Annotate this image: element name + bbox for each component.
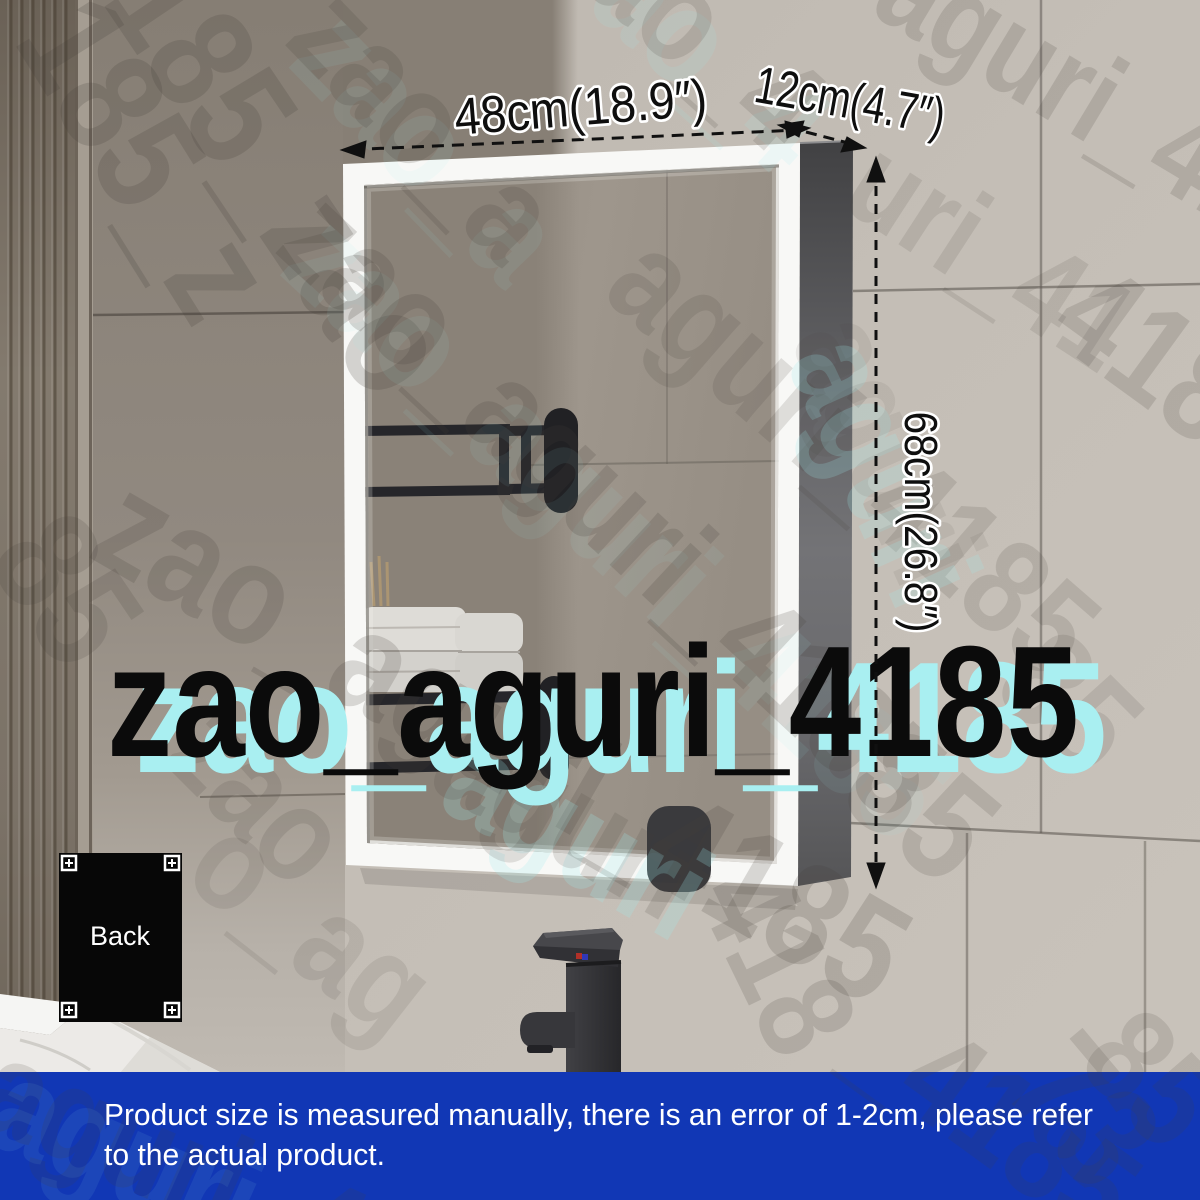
svg-text:zao_aguri_4185: zao_aguri_4185 <box>107 614 1079 790</box>
svg-text:to the actual product.: to the actual product. <box>104 1137 385 1172</box>
svg-text:Back: Back <box>90 921 151 951</box>
svg-text:68cm(26.8″): 68cm(26.8″) <box>895 412 947 633</box>
svg-text:Product size is measured manua: Product size is measured manually, there… <box>104 1097 1093 1132</box>
